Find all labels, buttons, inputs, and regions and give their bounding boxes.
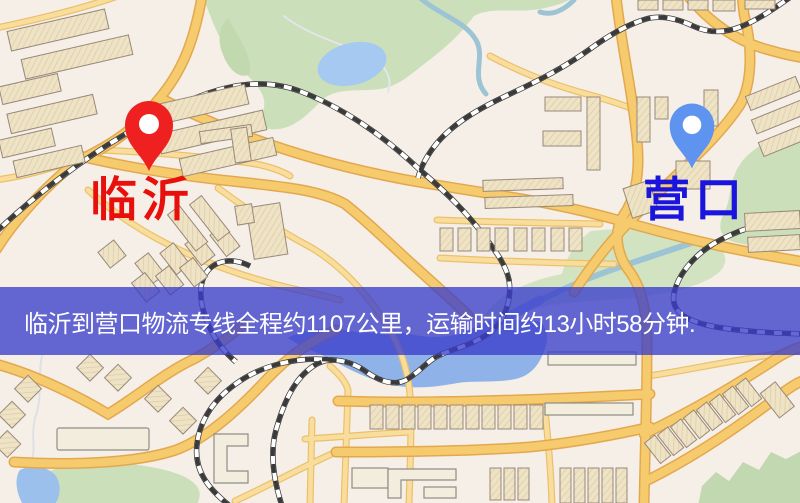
pin-hole	[683, 116, 702, 135]
destination-pin-icon[interactable]	[666, 101, 718, 171]
origin-city-label: 临沂	[90, 176, 194, 223]
map-screenshot: 临沂 营口 临沂到营口物流专线全程约1107公里，运输时间约13小时58分钟.	[0, 0, 800, 503]
origin-pin-icon[interactable]	[121, 99, 177, 173]
pin-hole	[139, 114, 159, 134]
destination-city-label: 营口	[643, 176, 747, 223]
route-info-banner: 临沂到营口物流专线全程约1107公里，运输时间约13小时58分钟.	[0, 287, 800, 355]
map-canvas[interactable]	[0, 0, 800, 503]
route-info-text: 临沂到营口物流专线全程约1107公里，运输时间约13小时58分钟.	[0, 304, 695, 339]
